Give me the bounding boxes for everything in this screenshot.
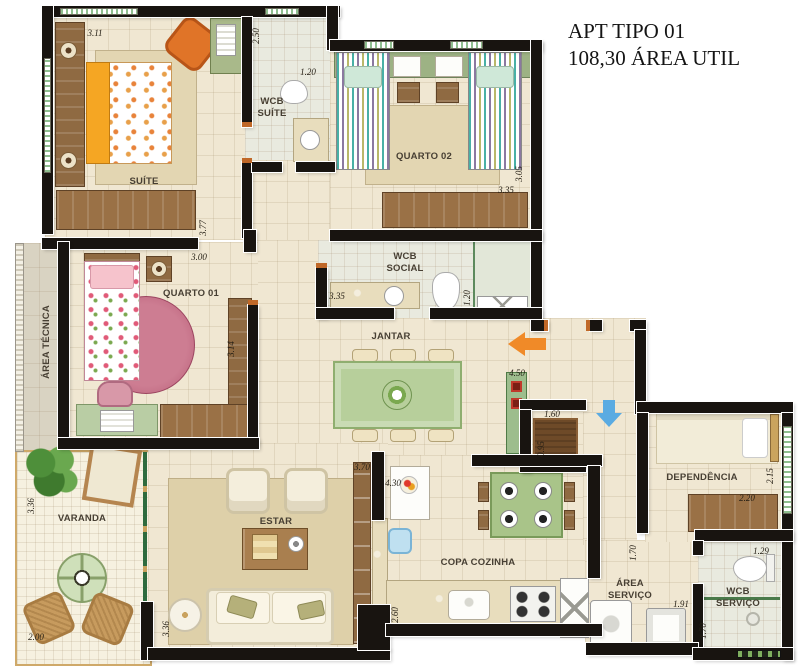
suite-wardrobe: [56, 190, 196, 230]
wcb-servico-toilet-tank: [766, 554, 775, 582]
quarto02-pillow: [476, 66, 514, 88]
kitchen-table: [490, 472, 563, 538]
window: [737, 650, 781, 658]
dim-label: 3.36: [161, 621, 171, 637]
room-label-area-servico: ÁREA SERVIÇO: [608, 578, 652, 602]
plan-title-line1: APT TIPO 01: [568, 18, 740, 45]
hall-upper-floor: [245, 160, 335, 252]
wall: [637, 402, 793, 413]
dim-label: 2.15: [765, 468, 775, 484]
wall: [58, 438, 259, 449]
laundry-tank: [646, 608, 686, 648]
quarto02-dresser: [382, 192, 528, 228]
quarto01-lamp: [151, 261, 167, 277]
dim-label: 4.30: [385, 478, 401, 488]
estar-table-bowl: [288, 536, 304, 552]
window: [60, 8, 138, 15]
quarto01-chair: [97, 381, 133, 407]
dim-label: 3.00: [191, 252, 207, 262]
room-label-quarto02: QUARTO 02: [396, 151, 452, 163]
jantar-chair: [428, 429, 454, 442]
estar-floor-lamp: [168, 598, 202, 632]
wall: [695, 530, 793, 541]
hall-wcb-floor: [256, 240, 318, 320]
window: [44, 58, 51, 173]
louver-window: [15, 243, 24, 452]
estar-armchair: [226, 468, 270, 514]
kitchen-plate: [534, 482, 552, 500]
washing-machine: [590, 600, 632, 646]
dependencia-headboard: [770, 414, 779, 462]
dim-label: 1.29: [753, 546, 769, 556]
dim-label: 2.20: [739, 493, 755, 503]
wall: [58, 242, 69, 442]
door-frame: [544, 320, 548, 331]
quarto02-stool: [397, 82, 420, 103]
quarto01-wardrobe: [160, 404, 252, 438]
dim-label: 1.20: [462, 290, 472, 306]
wall: [586, 643, 698, 655]
quarto02-nightstand: [435, 56, 463, 77]
dim-label: 4.50: [509, 368, 525, 378]
kitchen-high-chair: [388, 528, 412, 554]
kitchen-sink: [448, 590, 490, 620]
quarto01-pillow: [90, 265, 134, 289]
jantar-chair: [390, 429, 416, 442]
door-frame: [242, 158, 252, 163]
dim-label: 3.70: [354, 462, 370, 472]
wall: [330, 40, 542, 51]
wall: [386, 624, 602, 636]
kitchen-plate: [500, 510, 518, 528]
service-entry-arrow-icon: [596, 400, 622, 428]
door-frame: [242, 122, 252, 127]
wall: [330, 230, 542, 241]
shower-drain: [746, 612, 760, 626]
kitchen-chair: [478, 510, 489, 530]
room-label-copa: COPA COZINHA: [441, 557, 516, 569]
room-label-estar: ESTAR: [260, 516, 293, 528]
kitchen-chair: [564, 510, 575, 530]
wall: [590, 320, 602, 331]
door-frame: [316, 263, 327, 268]
wall: [588, 466, 600, 578]
suite-lamp: [60, 152, 77, 169]
dim-label: 1.70: [628, 545, 638, 561]
suite-lamp: [60, 42, 77, 59]
wall: [252, 162, 282, 172]
dependencia-pillow: [742, 418, 768, 458]
wcb-suite-sink: [300, 130, 320, 150]
window: [450, 41, 483, 49]
wall: [244, 230, 256, 252]
wall: [531, 40, 542, 330]
kitchen-plate: [534, 510, 552, 528]
wall: [316, 308, 394, 319]
kitchen-plate: [500, 482, 518, 500]
kitchen-chair: [478, 482, 489, 502]
door-frame: [248, 300, 258, 305]
room-label-area-tecnica: ÁREA TÉCNICA: [41, 305, 53, 379]
wcb-social-toilet: [432, 272, 460, 310]
entry-cabinet-box: [511, 381, 522, 392]
wall: [430, 308, 542, 319]
room-label-suite: SUÍTE: [130, 176, 159, 188]
window: [783, 426, 792, 514]
dim-label: 3.36: [26, 498, 36, 514]
dim-label: 0.95: [536, 441, 546, 457]
varanda-lounge-chair: [82, 442, 142, 507]
dim-label: 1.20: [300, 67, 316, 77]
window: [265, 8, 299, 15]
dim-label: 2.00: [28, 632, 44, 642]
door-frame: [586, 320, 590, 331]
jantar-chair: [352, 429, 378, 442]
room-label-varanda: VARANDA: [58, 513, 106, 525]
quarto02-stool: [436, 82, 459, 103]
wcb-social-sink: [384, 286, 404, 306]
quarto02-pillow: [344, 66, 382, 88]
room-label-dependencia: DEPENDÊNCIA: [666, 472, 737, 484]
wall: [372, 452, 384, 520]
dim-label: 3.14: [226, 341, 236, 357]
plan-title-line2: 108,30 ÁREA UTIL: [568, 45, 740, 72]
wall: [242, 162, 252, 238]
wall: [693, 541, 703, 555]
wall: [693, 584, 703, 650]
wall: [248, 305, 258, 445]
estar-armchair: [284, 468, 328, 514]
suite-bed-pillows: [86, 62, 110, 164]
dim-label: 3.11: [87, 28, 102, 38]
floor-plan: SUÍTE WCB SUÍTE QUARTO 02 WCB SOCIAL ÁRE…: [0, 0, 800, 670]
jantar-centerpiece: [382, 380, 412, 410]
dim-label: 1.70: [698, 623, 708, 639]
suite-towels: [216, 24, 236, 56]
dim-label: 1.91: [673, 599, 689, 609]
entry-arrow-icon: [508, 332, 548, 356]
wall: [637, 413, 648, 533]
room-label-wcb-suite: WCB SUÍTE: [258, 96, 287, 120]
dim-label: 3.35: [329, 291, 345, 301]
dim-label: 2.60: [390, 607, 400, 623]
room-label-wcb-social: WCB SOCIAL: [386, 251, 423, 275]
varanda-estar-glass-divider: [143, 450, 147, 606]
dependencia-dresser: [688, 494, 778, 532]
dim-label: 1.60: [544, 409, 560, 419]
window: [364, 41, 394, 49]
wall: [148, 648, 390, 660]
room-label-jantar: JANTAR: [371, 331, 410, 343]
estar-table-tray: [252, 534, 278, 560]
dim-label: 3.77: [198, 220, 208, 236]
room-label-quarto01: QUARTO 01: [163, 288, 219, 300]
plan-title: APT TIPO 01 108,30 ÁREA UTIL: [568, 18, 740, 73]
quarto01-desk-papers: [100, 410, 134, 432]
dim-label: 3.05: [514, 166, 524, 182]
varanda-plant: [24, 442, 80, 502]
quarto02-nightstand: [393, 56, 421, 77]
kitchen-fruit-bowl: [400, 476, 418, 494]
room-label-wcb-servico: WCB SERVIÇO: [716, 586, 760, 610]
wall: [296, 162, 335, 172]
kitchen-chair: [564, 482, 575, 502]
dim-label: 2.50: [251, 28, 261, 44]
dim-label: 3.35: [498, 185, 514, 195]
varanda-table-plant: [72, 568, 92, 588]
kitchen-stove: [510, 586, 556, 622]
